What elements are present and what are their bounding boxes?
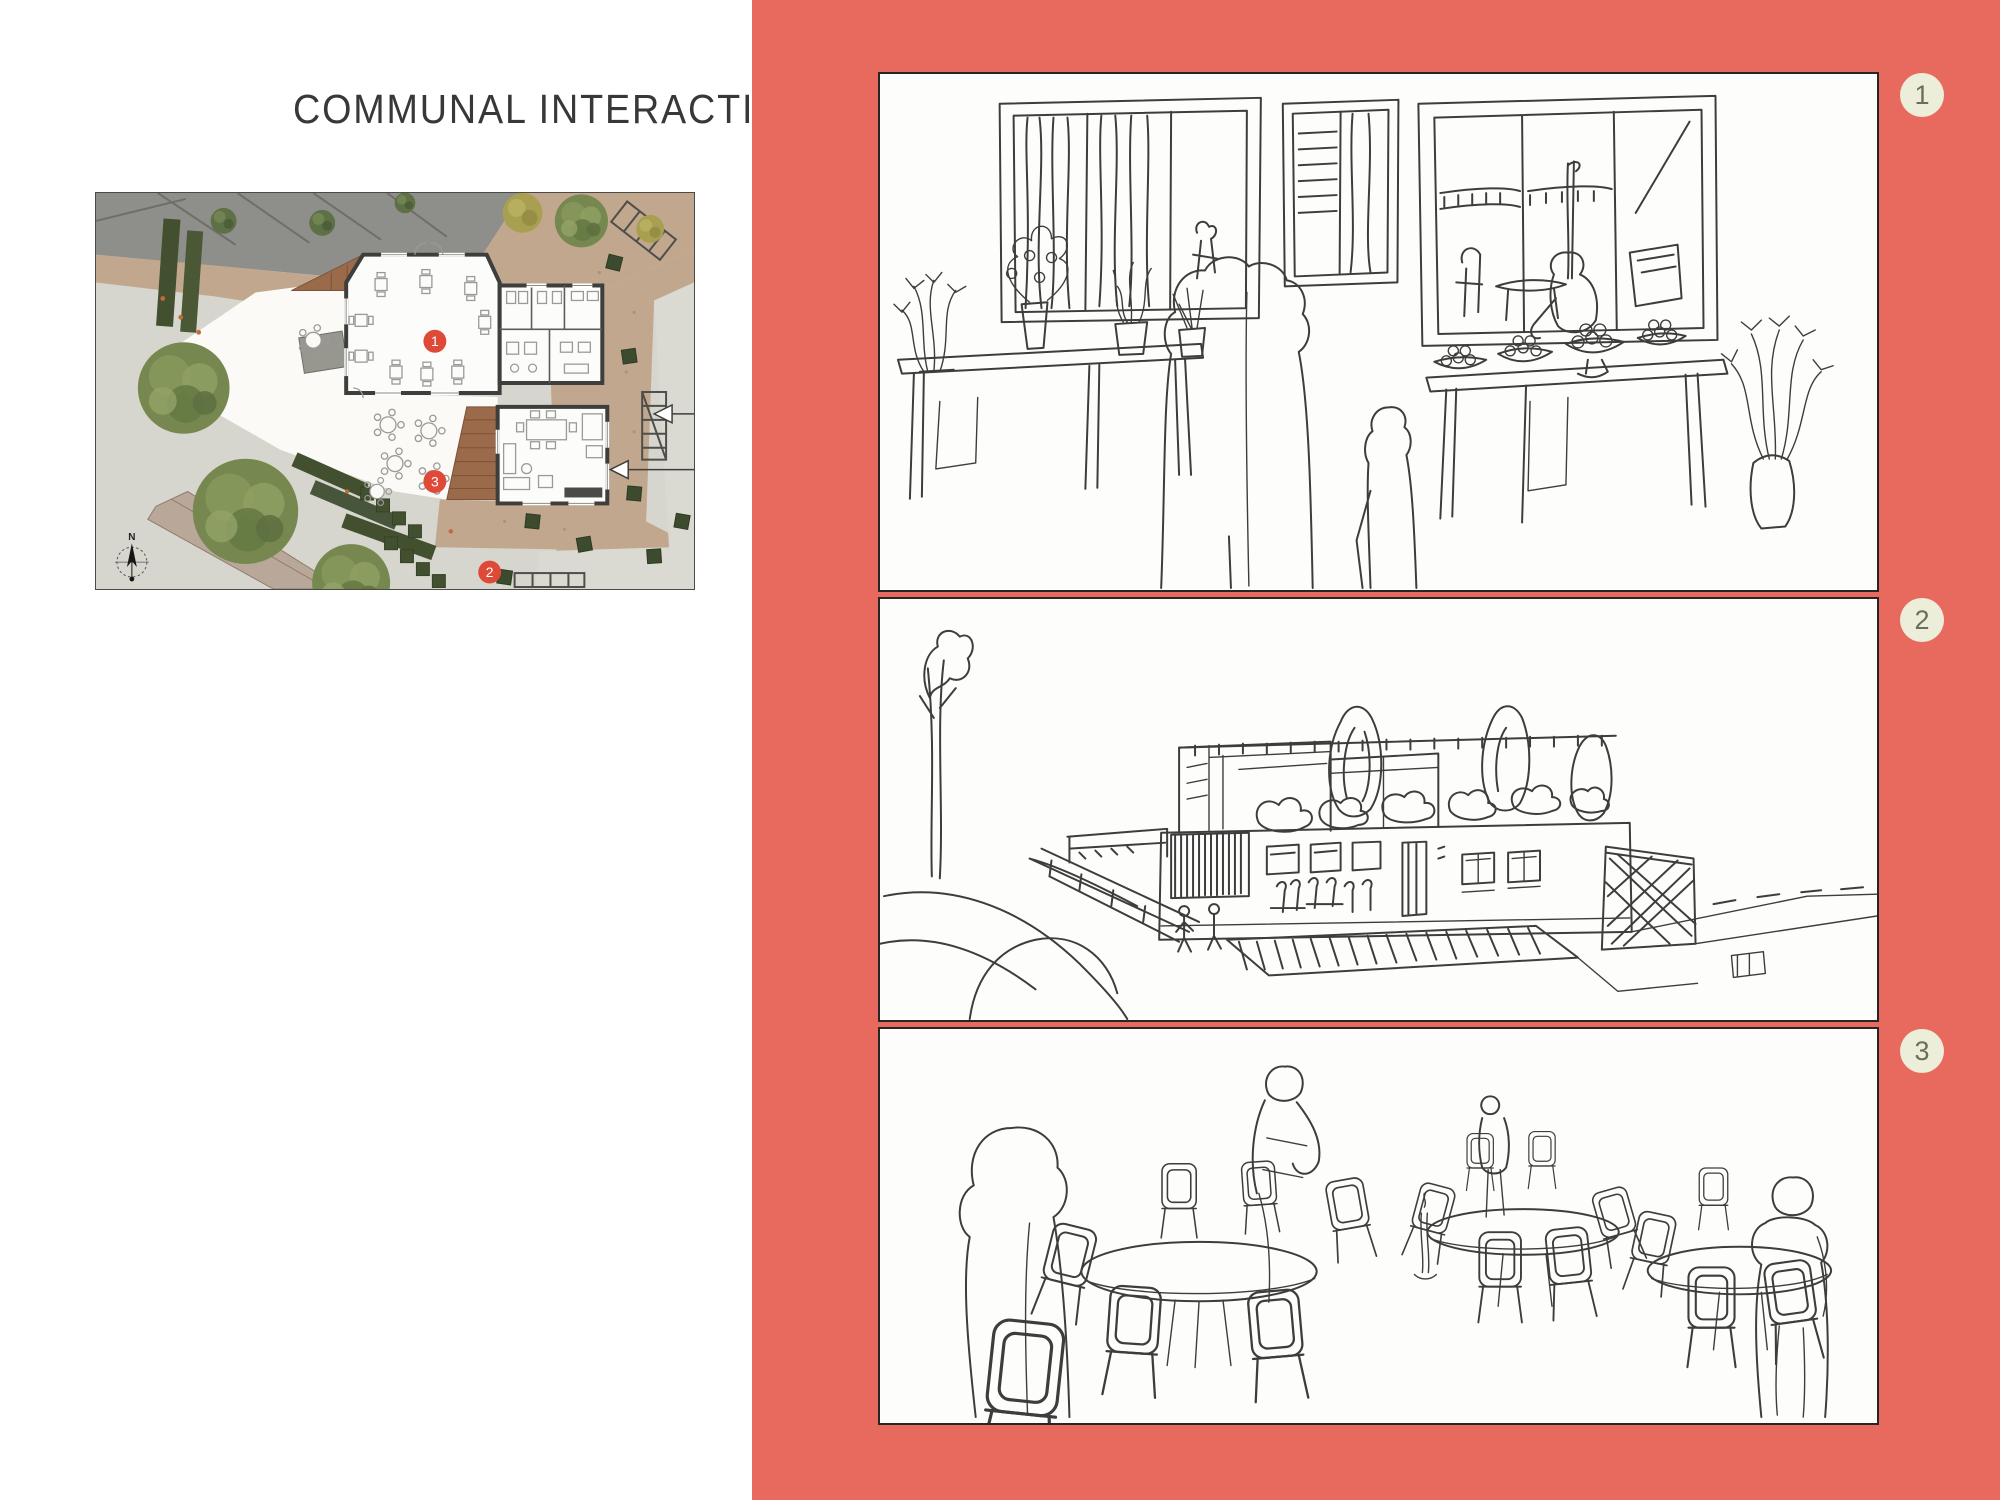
- site-plan-image: N 1 3 2: [96, 193, 694, 589]
- badge-2: 2: [1900, 598, 1944, 642]
- svg-text:3: 3: [431, 474, 439, 490]
- svg-text:2: 2: [486, 564, 494, 580]
- plan-marker-3: 3: [423, 470, 446, 493]
- badge-1-label: 1: [1914, 80, 1929, 111]
- sketch-2-image: [880, 599, 1877, 1020]
- sketch-2-frame: [878, 597, 1879, 1022]
- sketch-1-image: [880, 74, 1877, 590]
- svg-text:1: 1: [431, 333, 439, 349]
- plan-building-lower: [498, 407, 608, 504]
- compass-north-label: N: [128, 532, 135, 543]
- badge-1: 1: [1900, 73, 1944, 117]
- portfolio-page: COMMUNAL INTERACTION: [0, 0, 2000, 1500]
- site-plan-figure: N 1 3 2: [95, 192, 695, 590]
- plan-building-services: [500, 286, 603, 384]
- plan-marker-1: 1: [423, 330, 446, 353]
- sketch-3-image: [880, 1029, 1877, 1423]
- page-title: COMMUNAL INTERACTION: [293, 86, 815, 133]
- badge-2-label: 2: [1914, 605, 1929, 636]
- badge-3: 3: [1900, 1029, 1944, 1073]
- sketch-3-frame: [878, 1027, 1879, 1425]
- plan-marker-2: 2: [478, 561, 501, 584]
- sketch-1-frame: [878, 72, 1879, 592]
- badge-3-label: 3: [1914, 1036, 1929, 1067]
- plan-building-hall: [346, 243, 499, 398]
